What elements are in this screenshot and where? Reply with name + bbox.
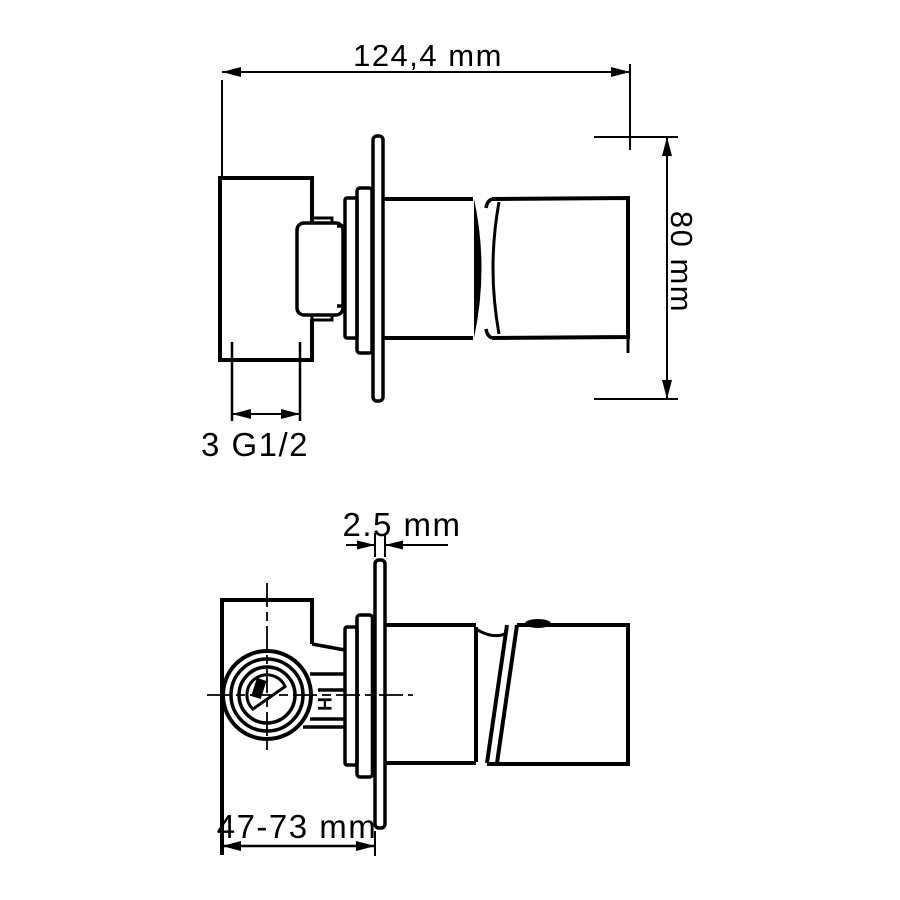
dim-thread [232,342,300,421]
dim-arrow-bottom [662,380,672,399]
hot-water-marking: H [313,697,334,711]
handle-knob-back-curve [493,202,499,334]
section-view: H 2.5 mm [207,506,628,856]
wall-plate [375,560,385,828]
handle-cone-top-curve [476,629,505,636]
dim-label-thread: 3 G1/2 [201,426,309,463]
dim-arrow-top [662,137,672,156]
wall-plate [373,136,383,401]
handle-cone-edge-2 [497,625,517,763]
cartridge-body [297,223,343,315]
dim-arrow-left [222,67,241,77]
side-view: 124,4 mm 80 mm 3 G1/2 [201,38,699,463]
dim-label-overall-depth: 124,4 mm [353,38,503,73]
dim-arrow-right [281,409,300,419]
dim-label-plate-thickness: 2.5 mm [342,506,461,543]
handle-knob [492,198,628,338]
body-chamfer [312,644,345,650]
handle-knob-corner-top [486,199,492,208]
dim-arrow-left [232,409,251,419]
handle-cone-crescent [474,199,482,338]
sleeve-step-front [345,198,357,338]
sleeve-step-front [345,627,357,765]
dim-overall-depth [222,64,630,176]
dim-arrow-right [611,67,630,77]
sleeve-step-back [357,188,372,353]
dim-label-mounting-depth: 47-73 mm [217,808,378,845]
handle-knob-corner-bottom [486,329,492,338]
dim-label-plate-height: 80 mm [664,211,699,313]
technical-drawing: 124,4 mm 80 mm 3 G1/2 [0,0,900,900]
technical-drawing-page: 124,4 mm 80 mm 3 G1/2 [0,0,900,900]
sleeve-step-back [357,615,373,777]
handle-cone-edge-1 [487,625,507,763]
